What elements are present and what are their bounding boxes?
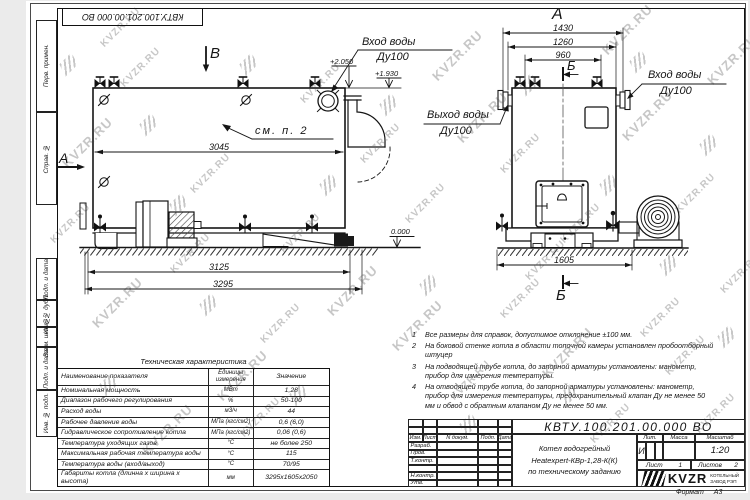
- dim-1605: 1605: [544, 255, 584, 265]
- spec-table-title: Техническая характеристика: [57, 357, 330, 366]
- spec-header-row: Наименование показателяЕдиницы измерения…: [58, 369, 329, 385]
- note-item: 1Все размеры для справок, допустимое отк…: [412, 330, 714, 339]
- spec-row: Максимальная рабочая температура воды°С1…: [58, 448, 329, 459]
- spec-cell: Температура воды (вход/выход): [58, 460, 208, 470]
- note-number: 3: [412, 362, 425, 380]
- note-number: 2: [412, 341, 425, 359]
- spec-cell: МПа (кгс/см2): [208, 428, 253, 438]
- spec-cell: 1,28: [253, 386, 329, 396]
- outlet-label-line1: Выход воды: [427, 109, 489, 121]
- spec-table: Наименование показателяЕдиницы измерения…: [57, 368, 330, 487]
- dim-960: 960: [543, 50, 583, 60]
- view-label-a: А: [552, 6, 563, 24]
- spec-header-cell: Наименование показателя: [58, 369, 208, 385]
- spec-cell: °С: [208, 460, 253, 470]
- note-text: На подводящей трубе котла, до запорной а…: [425, 362, 714, 380]
- spec-row: Гидравлическое сопротивление котлаМПа (к…: [58, 427, 329, 438]
- spec-cell: 3295х1605х2050: [253, 470, 329, 486]
- spec-row: Номинальная мощностьМВт1,28: [58, 385, 329, 396]
- spec-cell: 0,6 (6,0): [253, 418, 329, 428]
- spec-cell: 44: [253, 407, 329, 417]
- section-label-a: А: [59, 150, 68, 166]
- spec-row: Температура уходящих газов°Сне более 250: [58, 438, 329, 449]
- spec-cell: Температура уходящих газов: [58, 439, 208, 449]
- spec-cell: %: [208, 397, 253, 407]
- note-text: На отводящей трубе котла, до запорной ар…: [425, 382, 714, 410]
- spec-cell: °С: [208, 439, 253, 449]
- spec-cell: Гидравлическое сопротивление котла: [58, 428, 208, 438]
- dim-3045: 3045: [199, 142, 239, 152]
- elevation-2050: +2.050: [330, 57, 353, 66]
- note-text: Все размеры для справок, допустимое откл…: [425, 330, 714, 339]
- spec-header-cell: Значение: [253, 369, 329, 385]
- spec-cell: МВт: [208, 386, 253, 396]
- section-label-b-top: Б: [567, 58, 575, 73]
- spec-row: Габариты котла (длинна х ширина х высота…: [58, 469, 329, 486]
- spec-cell: Номинальная мощность: [58, 386, 208, 396]
- inlet-right-label-line2: Ду100: [660, 85, 692, 97]
- dim-1430: 1430: [543, 23, 583, 33]
- notes-list: 1Все размеры для справок, допустимое отк…: [412, 330, 714, 412]
- section-label-b-bottom: Б: [556, 287, 566, 304]
- spec-cell: МПа (кгс/см2): [208, 418, 253, 428]
- inlet-label-line1: Вход воды: [362, 36, 415, 48]
- spec-header-cell: Единицы измерения: [208, 369, 253, 385]
- dim-3125: 3125: [199, 262, 239, 272]
- note-item: 2На боковой стенке котла в области топоч…: [412, 341, 714, 359]
- outlet-label-line2: Ду100: [440, 125, 472, 137]
- spec-cell: 0,06 (0,6): [253, 428, 329, 438]
- note-item: 3На подводящей трубе котла, до запорной …: [412, 362, 714, 380]
- spec-row: Рабочее давление водыМПа (кгс/см2)0,6 (6…: [58, 417, 329, 428]
- dim-1260: 1260: [543, 37, 583, 47]
- spec-row: Расход водым3/ч44: [58, 406, 329, 417]
- note-item: 4На отводящей трубе котла, до запорной а…: [412, 382, 714, 410]
- spec-cell: Габариты котла (длинна х ширина х высота…: [58, 470, 208, 486]
- elevation-1930: +1.930: [375, 69, 398, 78]
- note-number: 4: [412, 382, 425, 410]
- spec-cell: Рабочее давление воды: [58, 418, 208, 428]
- inlet-right-label-line1: Вход воды: [648, 69, 701, 81]
- spec-cell: Максимальная рабочая температура воды: [58, 449, 208, 459]
- spec-cell: мм: [208, 470, 253, 486]
- spec-row: Диапазон рабочего регулирования%50-100: [58, 396, 329, 407]
- spec-cell: Расход воды: [58, 407, 208, 417]
- spec-cell: не более 250: [253, 439, 329, 449]
- spec-row: Температура воды (вход/выход)°С70/95: [58, 459, 329, 470]
- inlet-label-line2: Ду100: [377, 51, 409, 63]
- spec-cell: 70/95: [253, 460, 329, 470]
- spec-cell: °С: [208, 449, 253, 459]
- note-text: На боковой стенке котла в области топочн…: [425, 341, 714, 359]
- spec-cell: м3/ч: [208, 407, 253, 417]
- note-number: 1: [412, 330, 425, 339]
- spec-cell: 115: [253, 449, 329, 459]
- note-reference: см. п. 2: [255, 125, 308, 137]
- blueprint-page: { "doc": { "number": "КВТУ.100.201.00.00…: [0, 0, 750, 500]
- elevation-0000: 0.000: [391, 227, 410, 236]
- view-label-b: В: [210, 45, 220, 62]
- spec-cell: 50-100: [253, 397, 329, 407]
- dim-3295: 3295: [203, 279, 243, 289]
- spec-cell: Диапазон рабочего регулирования: [58, 397, 208, 407]
